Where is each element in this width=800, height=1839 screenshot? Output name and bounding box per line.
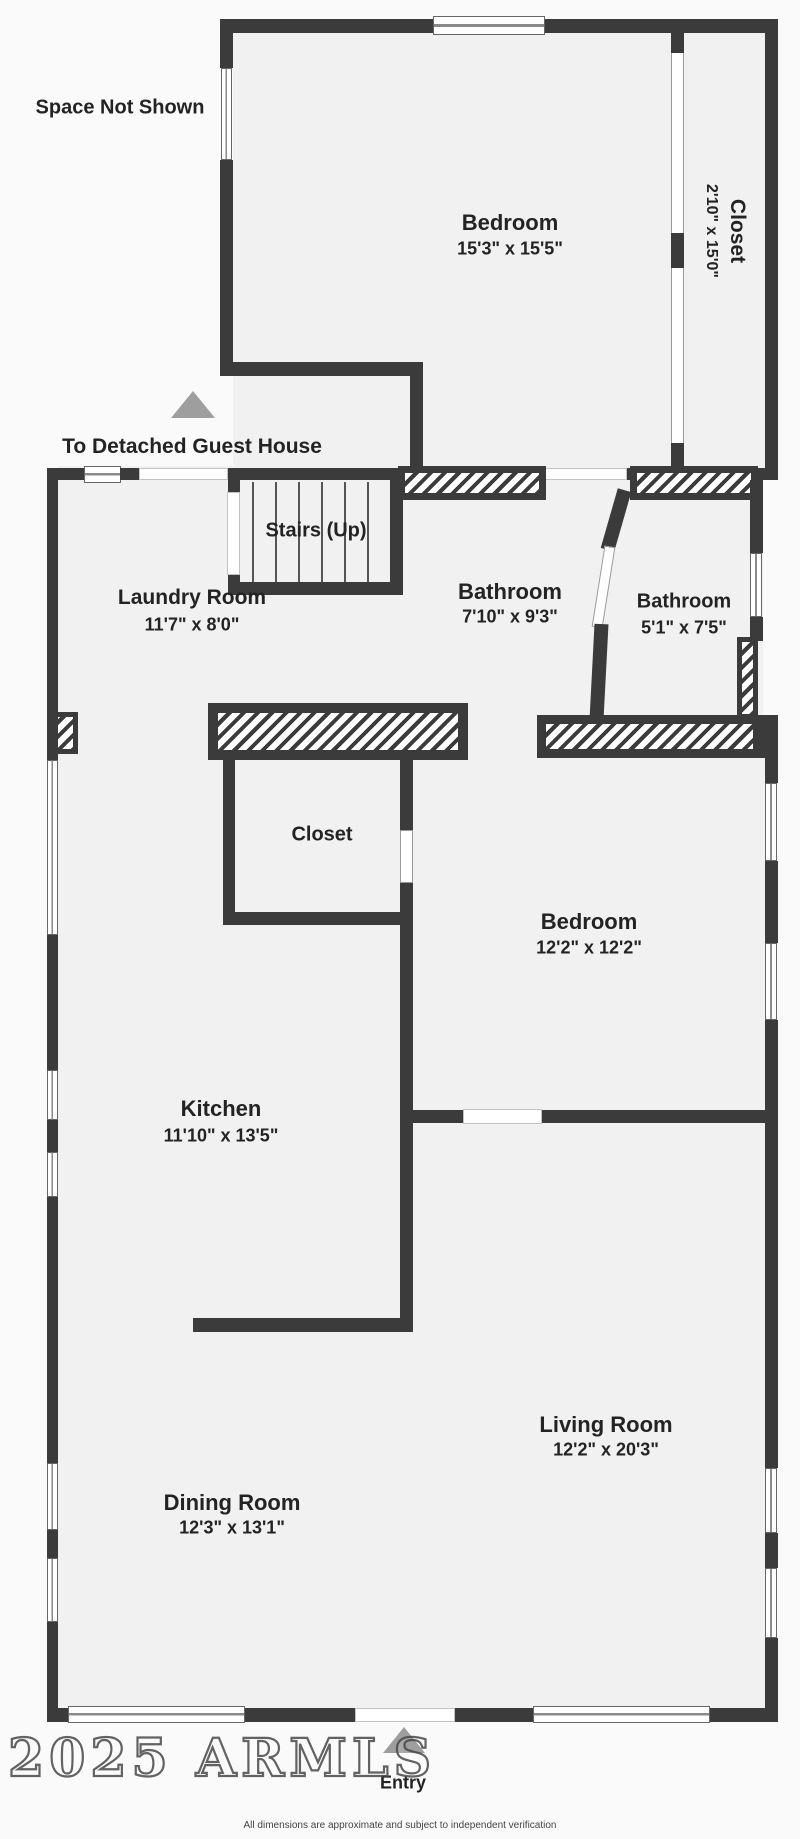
window (47, 1558, 58, 1622)
wall-upper-left (220, 160, 233, 376)
stair-tread (367, 482, 369, 582)
room-name-bedroom-middle: Bedroom (541, 909, 638, 935)
guest-house-opening (139, 468, 228, 480)
room-dims-dining-room: 12'3" x 13'1" (179, 1518, 285, 1539)
wall-divider-seg (671, 233, 684, 268)
room-name-laundry: Laundry Room (118, 586, 266, 610)
window (221, 68, 232, 160)
wall-left (47, 935, 58, 1070)
window (765, 783, 777, 861)
window (47, 1463, 58, 1530)
wall-right (765, 1020, 778, 1468)
room-name-living-room: Living Room (539, 1412, 672, 1438)
wall-bedroom-bottom (220, 362, 423, 376)
wall-right (765, 1533, 778, 1568)
wall-closet-bottom (223, 912, 413, 925)
closet-door-opening (400, 830, 413, 883)
bathroom-door-opening (545, 468, 627, 480)
wall-closet-left (223, 755, 235, 925)
wall-left (47, 1530, 58, 1558)
room-name-bathroom-small: Bathroom (637, 591, 731, 614)
wall-bottom (47, 1708, 68, 1722)
room-dims-bathroom-main: 7'10" x 9'3" (462, 607, 558, 628)
hatched-wall (398, 466, 546, 500)
room-name-bedroom-upper: Bedroom (462, 210, 559, 236)
window (750, 553, 762, 617)
disclaimer-text: All dimensions are approximate and subje… (244, 1820, 557, 1831)
room-dims-kitchen: 11'10" x 13'5" (164, 1126, 279, 1147)
window (765, 1568, 777, 1638)
wall-kitchen-divider (400, 925, 413, 1332)
room-name-dining-room: Dining Room (164, 1490, 301, 1516)
wall-upper-right (765, 19, 778, 480)
stairs-label: Stairs (Up) (265, 520, 366, 543)
wall-bottom (455, 1708, 533, 1722)
guest-house-arrow-icon (171, 391, 215, 418)
room-dims-living-room: 12'2" x 20'3" (553, 1440, 659, 1461)
window (765, 1468, 777, 1533)
wall-laundry-top (120, 468, 139, 480)
bedroom-door-opening (463, 1109, 542, 1124)
stairs-door-opening (227, 492, 240, 575)
wall-left (47, 1622, 58, 1708)
window (765, 943, 777, 1020)
wall-upper-left (220, 19, 233, 68)
wall-left (47, 480, 58, 760)
wall-divider-seg (671, 443, 684, 468)
entry-opening (355, 1708, 455, 1722)
hatched-wall (537, 715, 763, 758)
wall-divider-seg (671, 33, 684, 53)
room-name-kitchen: Kitchen (181, 1096, 262, 1122)
wall-kitchen-bottom (193, 1318, 413, 1332)
hatched-wall (208, 703, 468, 760)
room-dims-closet-upper: 2'10" x 15'0" (702, 184, 720, 278)
wall-bathroom-right (750, 480, 763, 553)
window (47, 760, 58, 935)
window (68, 1706, 245, 1723)
hatched-wall (737, 637, 758, 719)
window (84, 466, 121, 483)
floor-plan: Space Not Shown Bedroom 15'3" x 15'5" Cl… (0, 0, 800, 1839)
room-dims-laundry: 11'7" x 8'0" (145, 615, 240, 636)
wall-stairs-left (228, 468, 240, 492)
room-name-closet-middle: Closet (291, 824, 352, 847)
armls-watermark: 2025 ARMLS (8, 1728, 436, 1789)
wall-bedroom-bottom (400, 1110, 463, 1123)
window (433, 16, 545, 35)
stair-tread (252, 482, 254, 582)
window (533, 1706, 710, 1723)
room-dims-bedroom-upper: 15'3" x 15'5" (457, 239, 563, 260)
room-dims-bedroom-middle: 12'2" x 12'2" (536, 938, 642, 959)
hatched-wall (630, 466, 758, 500)
wall-left (47, 1120, 58, 1152)
wall-laundry-top (47, 468, 85, 480)
wall-stub (410, 362, 423, 478)
guest-house-label: To Detached Guest House (62, 435, 322, 459)
outside-step-area (763, 480, 800, 715)
wall-right (765, 861, 778, 943)
window (47, 1152, 58, 1197)
wall-closet-right (400, 755, 413, 830)
space-not-shown-label: Space Not Shown (36, 97, 205, 120)
room-name-closet-upper: Closet (725, 199, 749, 263)
wall-bottom (710, 1708, 778, 1722)
wall-bedroom-bottom (542, 1110, 778, 1123)
room-dims-bathroom-small: 5'1" x 7'5" (641, 618, 727, 639)
wall-closet-right (400, 883, 413, 925)
room-name-bathroom-main: Bathroom (458, 579, 562, 605)
wall-bottom (245, 1708, 355, 1722)
wall-left (47, 1197, 58, 1463)
wall-right (765, 750, 778, 783)
window (47, 1070, 58, 1120)
wall-stairs-top (228, 468, 403, 480)
